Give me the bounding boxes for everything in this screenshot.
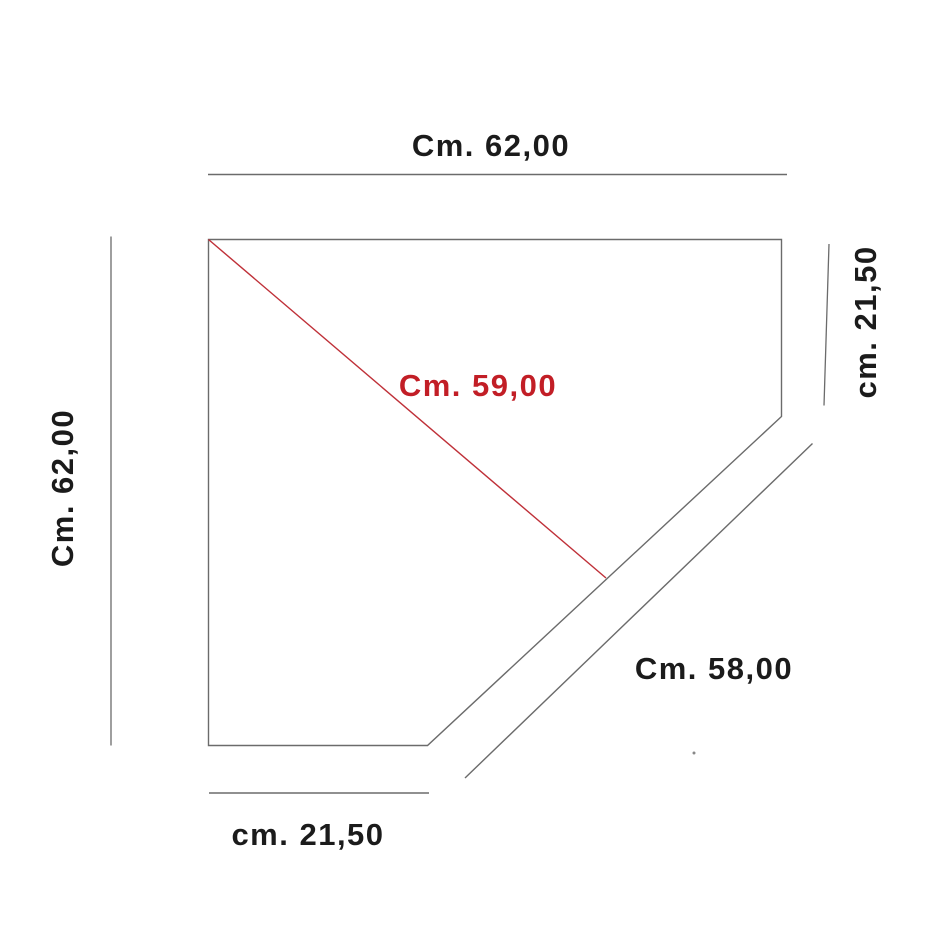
- svg-text:Cm. 59,00: Cm. 59,00: [399, 368, 557, 403]
- svg-text:cm. 21,50: cm. 21,50: [848, 245, 883, 398]
- svg-text:Cm. 62,00: Cm. 62,00: [45, 409, 80, 567]
- svg-text:Cm. 62,00: Cm. 62,00: [412, 128, 570, 163]
- svg-text:Cm. 58,00: Cm. 58,00: [635, 651, 793, 686]
- svg-text:cm. 21,50: cm. 21,50: [231, 817, 384, 852]
